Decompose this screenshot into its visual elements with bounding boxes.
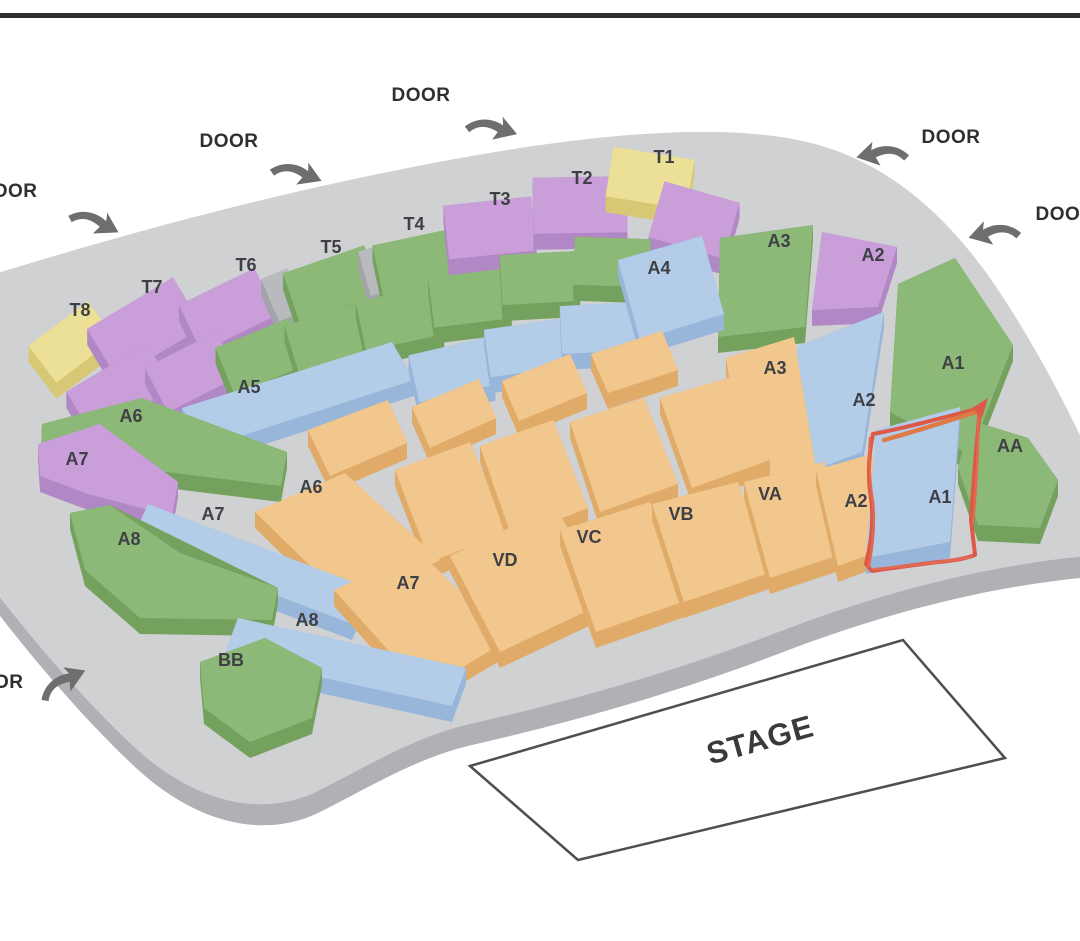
section-block-a3_top[interactable] [718, 225, 813, 353]
section-label-a2_top: A2 [861, 245, 884, 265]
section-label-t4: T4 [403, 214, 424, 234]
section-label-t2: T2 [571, 168, 592, 188]
section-label-t3: T3 [489, 189, 510, 209]
section-label-vb: VB [668, 504, 693, 524]
section-label-a4: A4 [647, 258, 670, 278]
section-label-a7_blue: A7 [201, 504, 224, 524]
section-label-a6_orange: A6 [299, 477, 322, 497]
section-label-vc: VC [576, 527, 601, 547]
section-label-aa: AA [997, 436, 1023, 456]
section-label-bb: BB [218, 650, 244, 670]
section-label-a3_orange: A3 [763, 358, 786, 378]
section-label-a2_blue: A2 [852, 390, 875, 410]
section-label-t6: T6 [235, 255, 256, 275]
section-label-a3_top: A3 [767, 231, 790, 251]
section-label-a8_blue: A8 [295, 610, 318, 630]
section-label-a5: A5 [237, 377, 260, 397]
block-top-face [428, 268, 512, 327]
section-label-a1_blue: A1 [928, 487, 951, 507]
block-top-face [500, 251, 581, 305]
block-top-face[interactable] [718, 225, 813, 337]
section-label-a8_green: A8 [117, 529, 140, 549]
section-label-t8: T8 [69, 300, 90, 320]
section-label-t5: T5 [320, 237, 341, 257]
door-label-6: DOOR [0, 672, 24, 693]
door-label-2: DOOR [200, 131, 259, 152]
door-label-3: DOOR [0, 181, 38, 202]
section-label-a1_green: A1 [941, 353, 964, 373]
section-label-t1: T1 [653, 147, 674, 167]
top-border-line [0, 13, 1080, 18]
section-label-a7_purple: A7 [65, 449, 88, 469]
door-label-1: DOOR [392, 85, 451, 106]
door-label-4: DOOR [922, 127, 981, 148]
door-label-5: DOOR [1036, 204, 1080, 225]
section-label-a7_orange: A7 [396, 573, 419, 593]
section-label-a6_green: A6 [119, 406, 142, 426]
seating-map: STAGE DOORDOORDOORDOORDOORDOOR T8T7T6T5T… [0, 0, 1080, 941]
section-label-t7: T7 [141, 277, 162, 297]
section-label-vd: VD [492, 550, 517, 570]
section-label-a2_orange: A2 [844, 491, 867, 511]
section-label-va: VA [758, 484, 782, 504]
